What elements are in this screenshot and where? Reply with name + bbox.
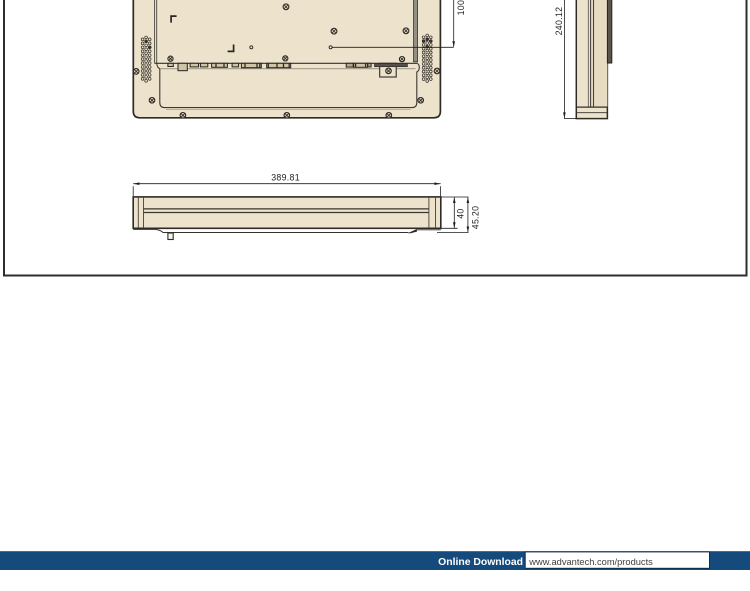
svg-text:389.81: 389.81: [271, 173, 300, 183]
svg-text:www.advantech.com/products: www.advantech.com/products: [528, 557, 653, 567]
svg-text:45.20: 45.20: [470, 206, 480, 230]
svg-text:240.12: 240.12: [554, 7, 564, 36]
svg-text:Online Download: Online Download: [438, 557, 523, 568]
svg-text:100: 100: [456, 0, 466, 15]
svg-text:40: 40: [456, 208, 466, 218]
